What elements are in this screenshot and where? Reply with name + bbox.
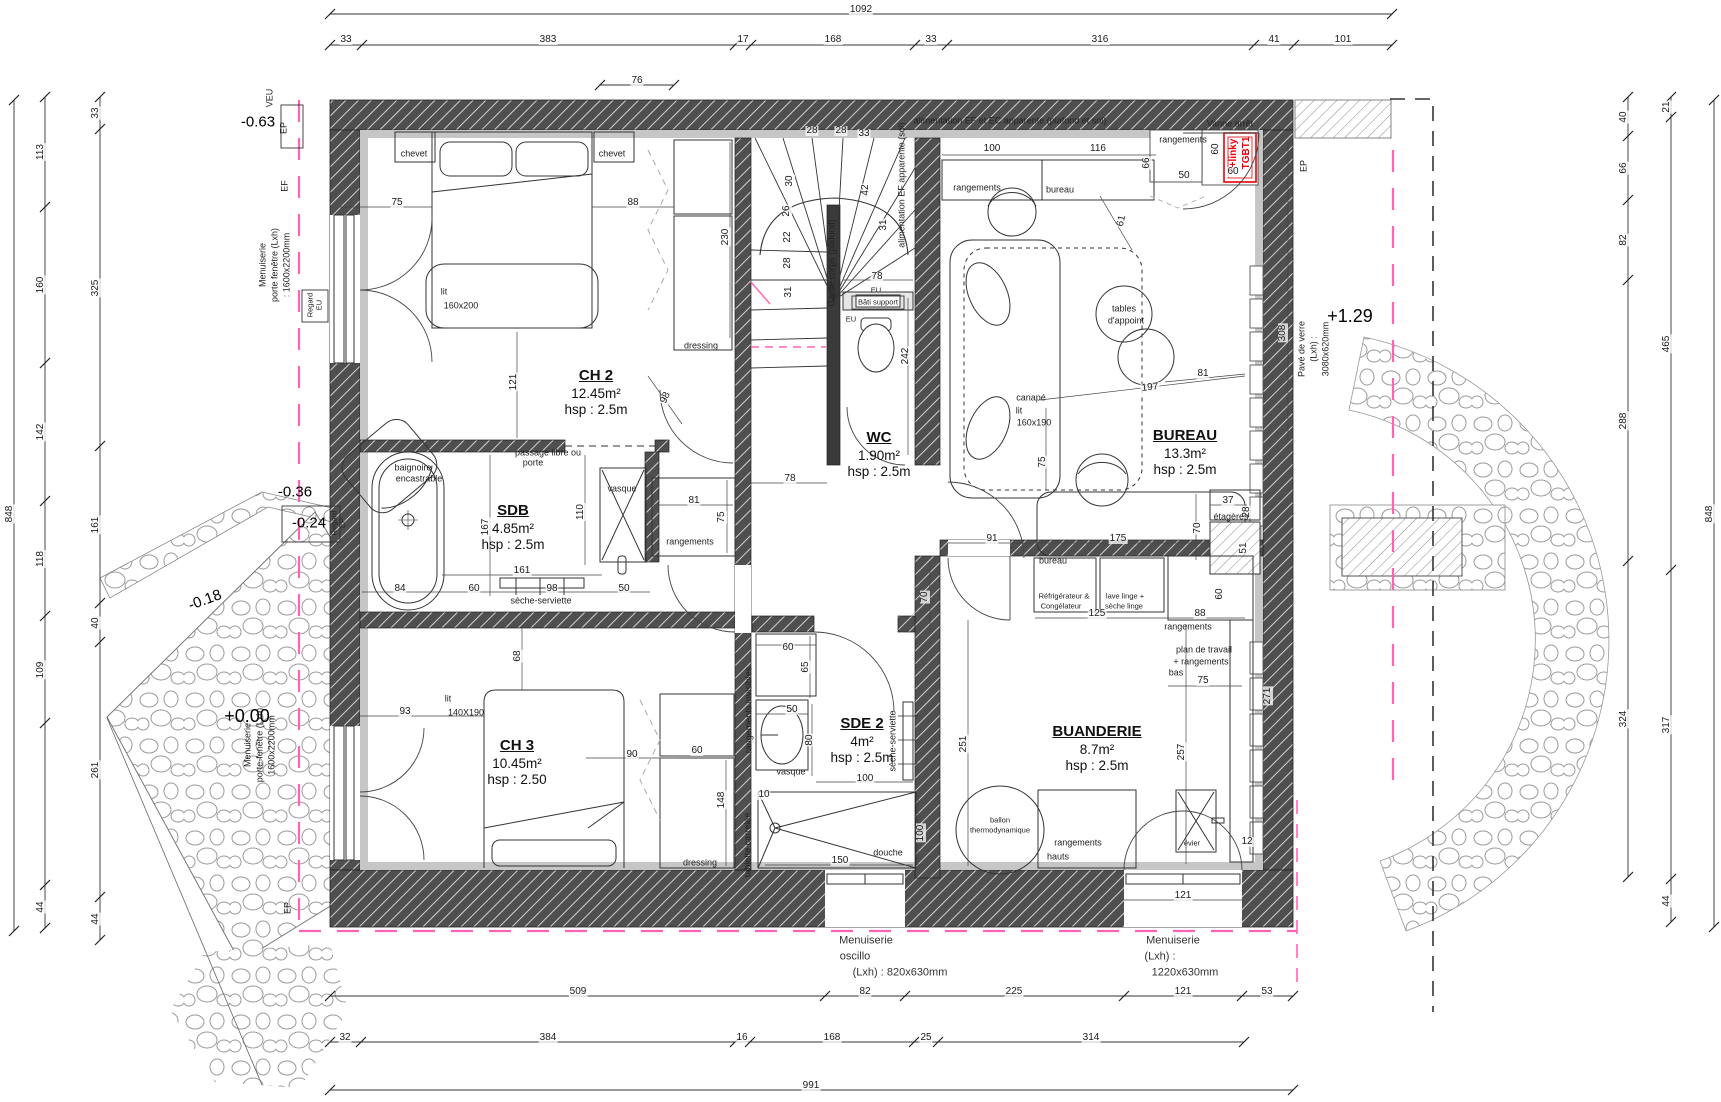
stone-circle-right	[1243, 337, 1609, 931]
toilet	[858, 324, 894, 372]
stone-paving-left	[100, 492, 348, 1088]
building-footprint	[330, 100, 1293, 927]
floor-plan: 1092333831716833316411017650982225121533…	[0, 0, 1721, 1102]
plan-drawing	[0, 0, 1721, 1102]
roof-overhang	[1295, 100, 1391, 138]
